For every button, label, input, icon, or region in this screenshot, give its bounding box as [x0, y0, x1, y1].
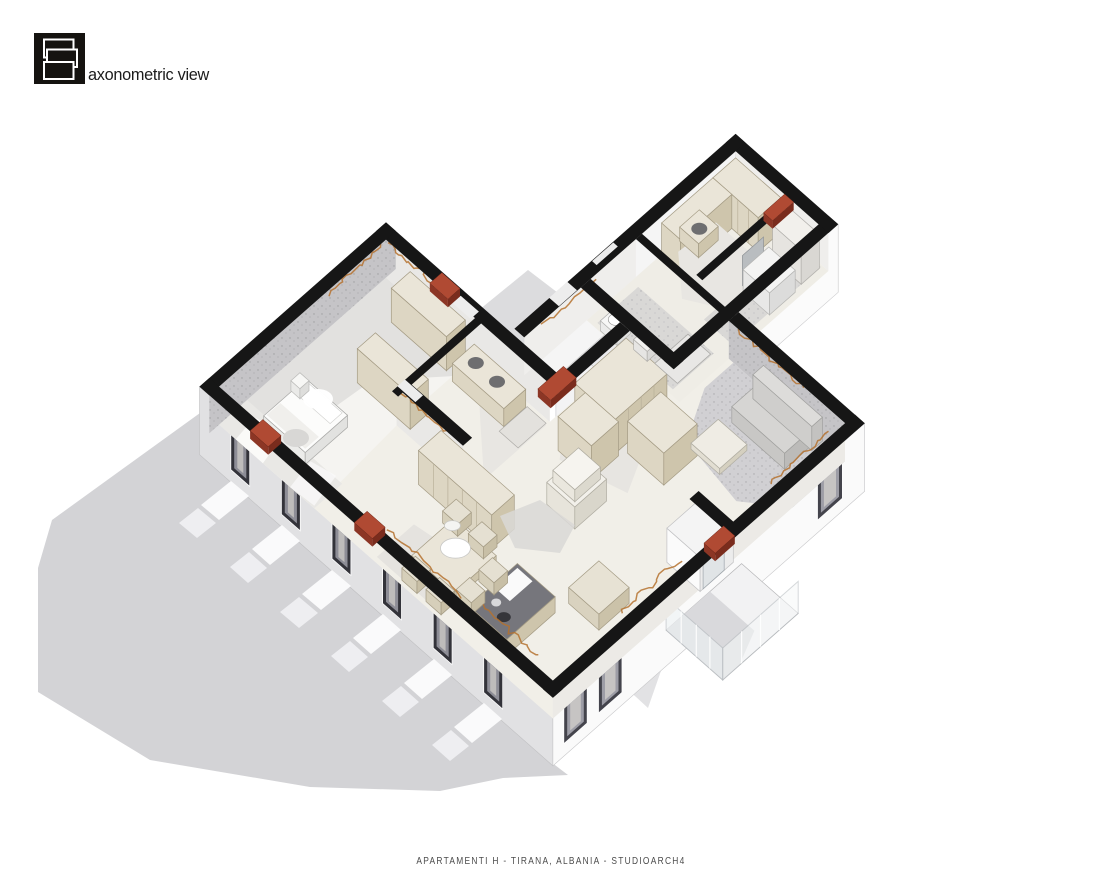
svg-text:APARTAMENTI H - TIRANA, ALBAN: APARTAMENTI H - TIRANA, ALBANIA - STUDIO… [416, 855, 685, 867]
svg-text:axonometric view: axonometric view [88, 66, 210, 84]
